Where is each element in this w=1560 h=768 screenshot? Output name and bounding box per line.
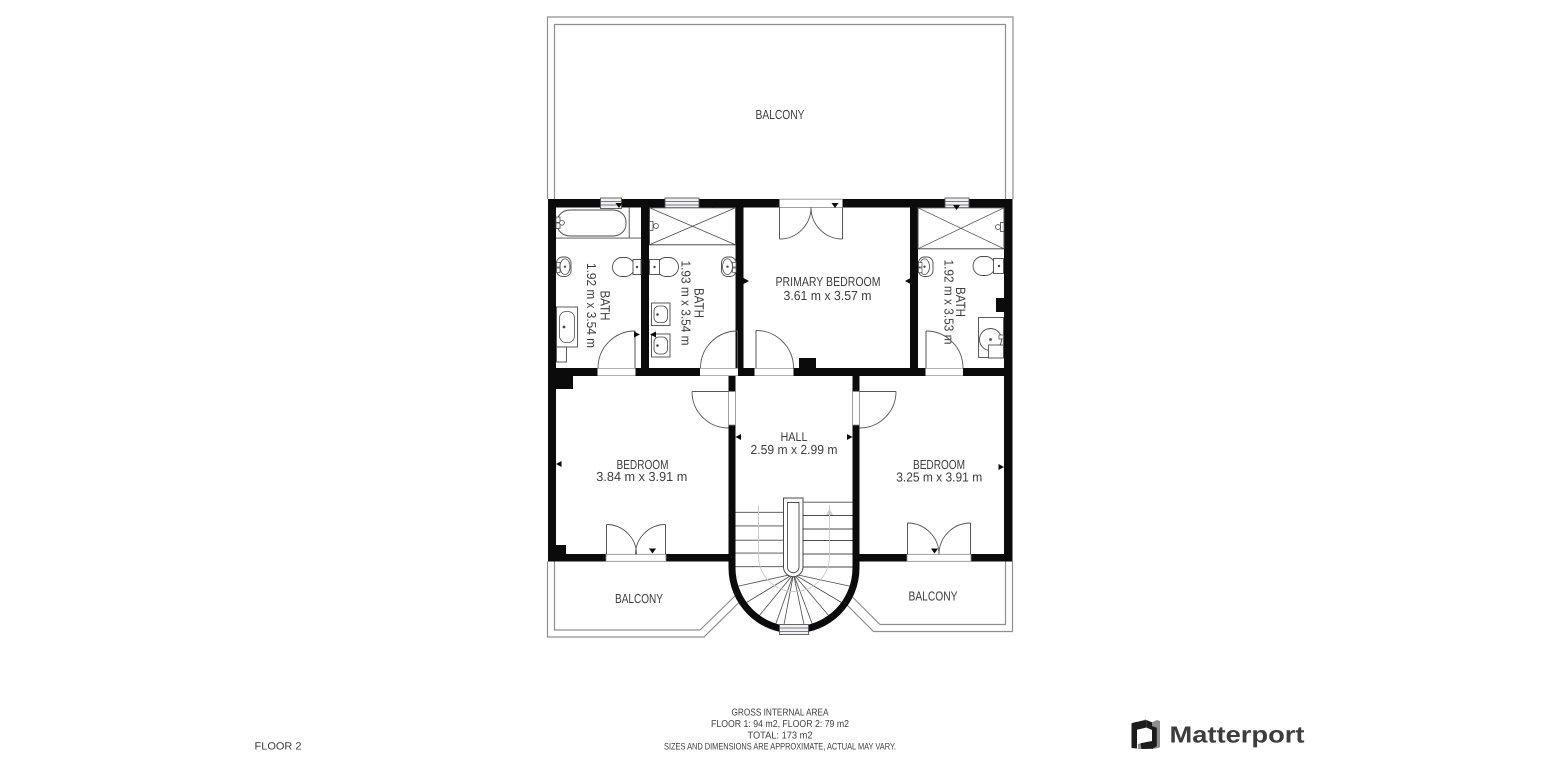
svg-text:3.25 m x 3.91 m: 3.25 m x 3.91 m <box>896 470 982 485</box>
svg-text:TOTAL: 173 m2: TOTAL: 173 m2 <box>748 731 813 742</box>
svg-text:BALCONY: BALCONY <box>756 107 805 122</box>
svg-text:Matterport: Matterport <box>1170 722 1305 748</box>
svg-text:BALCONY: BALCONY <box>909 589 958 604</box>
svg-text:SIZES AND DIMENSIONS ARE APPRO: SIZES AND DIMENSIONS ARE APPROXIMATE, AC… <box>664 742 896 753</box>
svg-text:3.84 m x 3.91 m: 3.84 m x 3.91 m <box>596 469 687 484</box>
svg-text:FLOOR 1: 94 m2, FLOOR 2: 79 m2: FLOOR 1: 94 m2, FLOOR 2: 79 m2 <box>711 719 849 730</box>
svg-text:PRIMARY BEDROOM: PRIMARY BEDROOM <box>776 274 881 289</box>
svg-text:GROSS INTERNAL AREA: GROSS INTERNAL AREA <box>732 708 829 719</box>
svg-text:BALCONY: BALCONY <box>615 591 663 606</box>
svg-text:FLOOR 2: FLOOR 2 <box>255 741 302 753</box>
svg-text:3.61 m x 3.57 m: 3.61 m x 3.57 m <box>784 288 872 303</box>
svg-text:1.93 m x 3.54 m: 1.93 m x 3.54 m <box>679 261 694 346</box>
svg-text:1.92 m x 3.53 m: 1.92 m x 3.53 m <box>942 260 957 345</box>
svg-text:2.59 m x 2.99 m: 2.59 m x 2.99 m <box>751 442 838 457</box>
svg-text:1.92 m x 3.54 m: 1.92 m x 3.54 m <box>584 263 599 348</box>
